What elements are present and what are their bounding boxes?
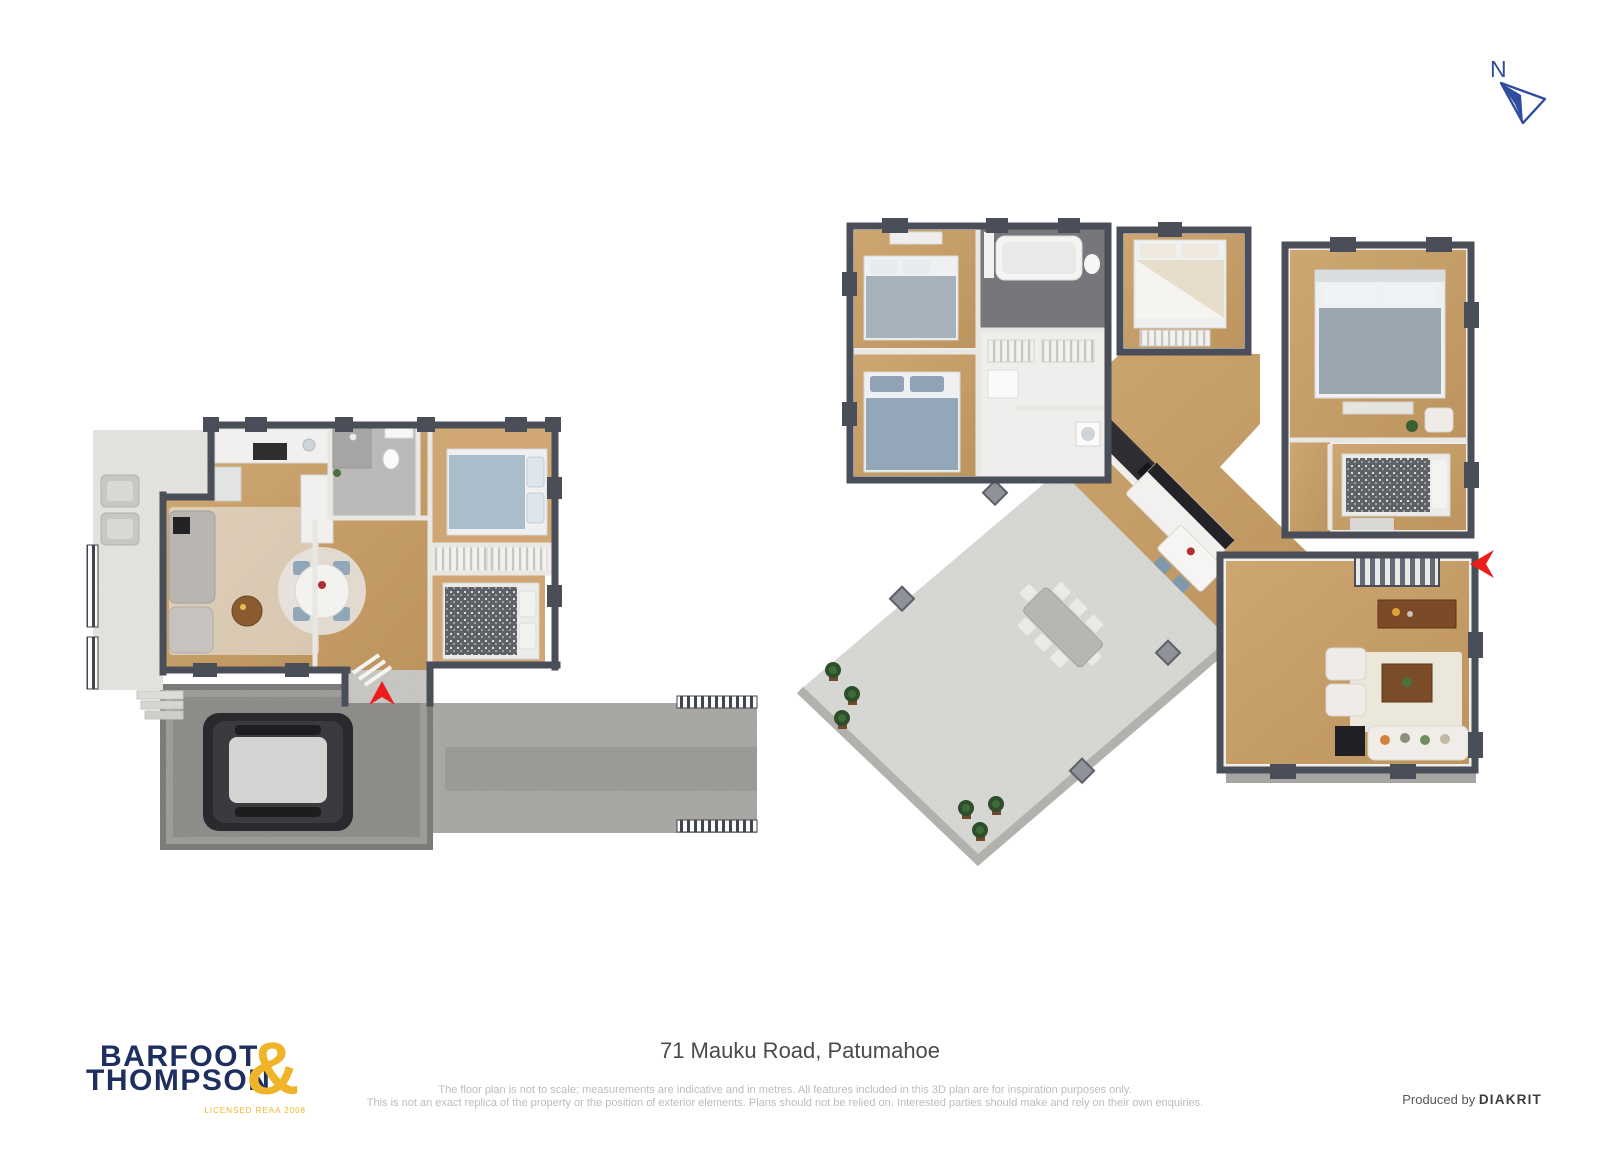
producer-credit: Produced by DIAKRIT bbox=[1402, 1092, 1542, 1107]
fridge bbox=[215, 467, 241, 501]
bedroom-2 bbox=[864, 372, 960, 472]
bed-duvet bbox=[445, 587, 517, 655]
bedroom-2 bbox=[443, 583, 539, 659]
driveway-railing-bottom bbox=[677, 820, 757, 832]
bed-bench bbox=[1343, 402, 1413, 414]
dining-area bbox=[278, 547, 366, 635]
credit-prefix: Produced by bbox=[1402, 1092, 1475, 1107]
desk bbox=[1350, 518, 1394, 530]
deck-railing-2 bbox=[87, 637, 98, 689]
floor-plan-page: { "compass": { "label": "N" }, "icons": … bbox=[0, 0, 1600, 1167]
deck-steps bbox=[137, 691, 183, 719]
tv-cabinet bbox=[1378, 600, 1456, 628]
coffee-table bbox=[232, 596, 262, 626]
pillow bbox=[519, 623, 536, 649]
toilet bbox=[1084, 254, 1100, 274]
disclaimer-line-2: This is not an exact replica of the prop… bbox=[0, 1097, 1570, 1110]
armchair bbox=[1326, 648, 1366, 680]
vanity bbox=[385, 427, 413, 438]
disclaimer: The floor plan is not to scale; measurem… bbox=[0, 1084, 1570, 1109]
toilet bbox=[383, 449, 399, 469]
bedroom-block-left bbox=[850, 226, 1108, 480]
driveway bbox=[430, 696, 757, 833]
bedroom-1 bbox=[447, 449, 547, 535]
sink bbox=[303, 439, 315, 451]
plant bbox=[333, 469, 341, 477]
bedroom-3 bbox=[1120, 230, 1248, 352]
armchair bbox=[1326, 684, 1366, 716]
pillow bbox=[527, 493, 544, 523]
living-room bbox=[1220, 555, 1476, 783]
dining-table bbox=[295, 564, 349, 618]
disclaimer-line-1: The floor plan is not to scale; measurem… bbox=[0, 1084, 1570, 1097]
stairs bbox=[1355, 556, 1439, 586]
floor-plan-minor-dwelling bbox=[85, 415, 775, 855]
compass-north-label: N bbox=[1490, 56, 1508, 83]
compass: N bbox=[1488, 56, 1558, 126]
north-arrow-icon bbox=[1496, 80, 1548, 126]
wardrobes bbox=[435, 547, 547, 571]
laundry bbox=[1076, 422, 1100, 446]
armchair bbox=[1425, 408, 1453, 432]
lounge-chair bbox=[169, 607, 213, 653]
master-block bbox=[1285, 245, 1471, 535]
driveway-railing-top bbox=[677, 696, 757, 708]
bed-duvet bbox=[449, 455, 525, 529]
fireplace bbox=[1335, 726, 1365, 756]
garage bbox=[163, 687, 430, 847]
property-address: 71 Mauku Road, Patumahoe bbox=[0, 1038, 1600, 1064]
plant bbox=[1406, 420, 1418, 432]
credit-producer: DIAKRIT bbox=[1479, 1092, 1542, 1107]
vanity bbox=[984, 232, 994, 278]
sofa-cushion bbox=[173, 517, 190, 534]
floor-plan-main-house bbox=[790, 212, 1500, 882]
master-bed bbox=[1315, 270, 1445, 414]
pillow bbox=[519, 591, 536, 617]
deck-railing bbox=[87, 545, 98, 627]
pillow bbox=[527, 457, 544, 487]
car bbox=[203, 713, 353, 831]
cooktop bbox=[253, 443, 287, 460]
